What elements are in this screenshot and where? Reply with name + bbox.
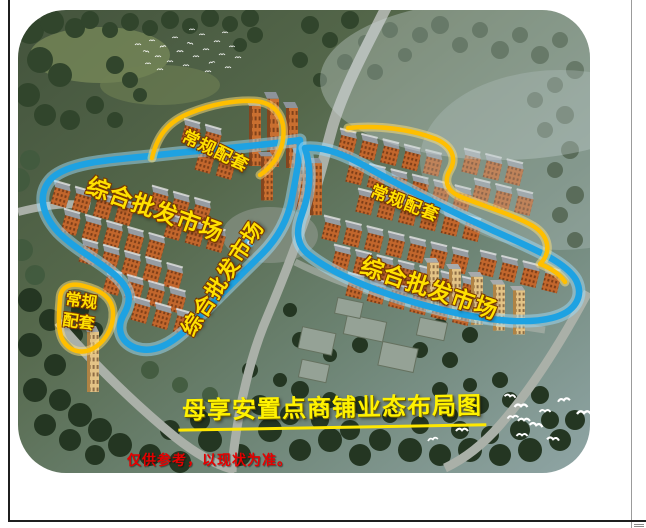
masterplan-rendering[interactable]	[0, 0, 646, 528]
page-border-bottom	[8, 520, 646, 522]
page-border-left	[8, 0, 10, 521]
page-corner-mark	[634, 523, 644, 527]
disclaimer-note: 仅供参考，以现状为准。	[127, 450, 292, 470]
map-title: 母享安置点商铺业态布局图	[178, 385, 487, 431]
region-label-support-left-line2: 配套	[61, 310, 96, 335]
region-label-support-left: 常规 配套	[61, 289, 98, 335]
document-page: 综合批发市场 综合批发市场 综合批发市场 常规配套 常规配套 常规 配套 母享安…	[0, 0, 646, 528]
page-border-right	[631, 0, 632, 528]
